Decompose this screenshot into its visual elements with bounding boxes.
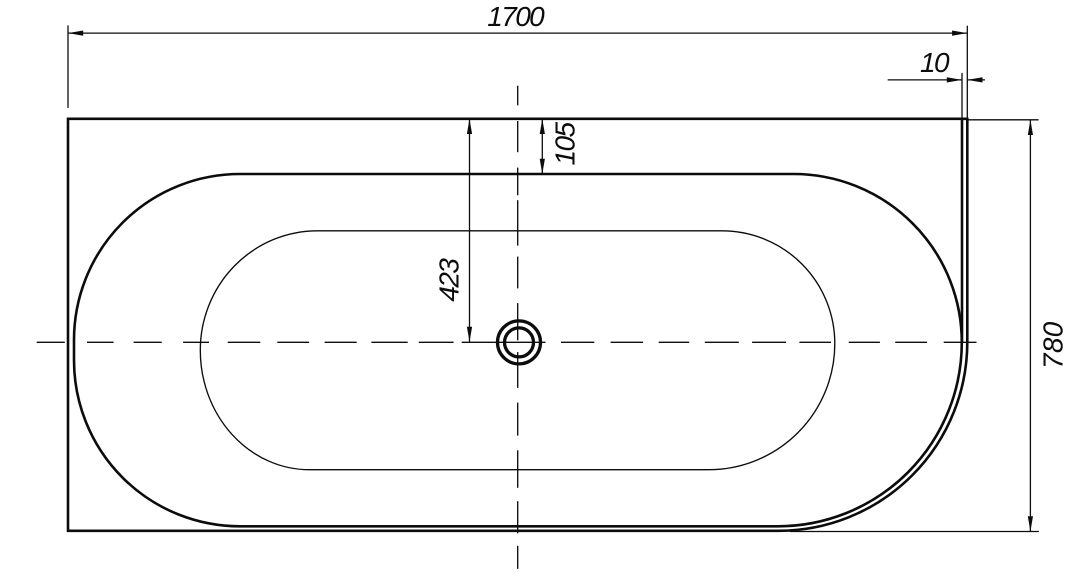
svg-text:105: 105 xyxy=(550,122,581,166)
svg-text:780: 780 xyxy=(1038,321,1069,369)
svg-text:423: 423 xyxy=(434,258,465,302)
svg-text:1700: 1700 xyxy=(487,1,545,32)
svg-text:10: 10 xyxy=(920,47,950,78)
